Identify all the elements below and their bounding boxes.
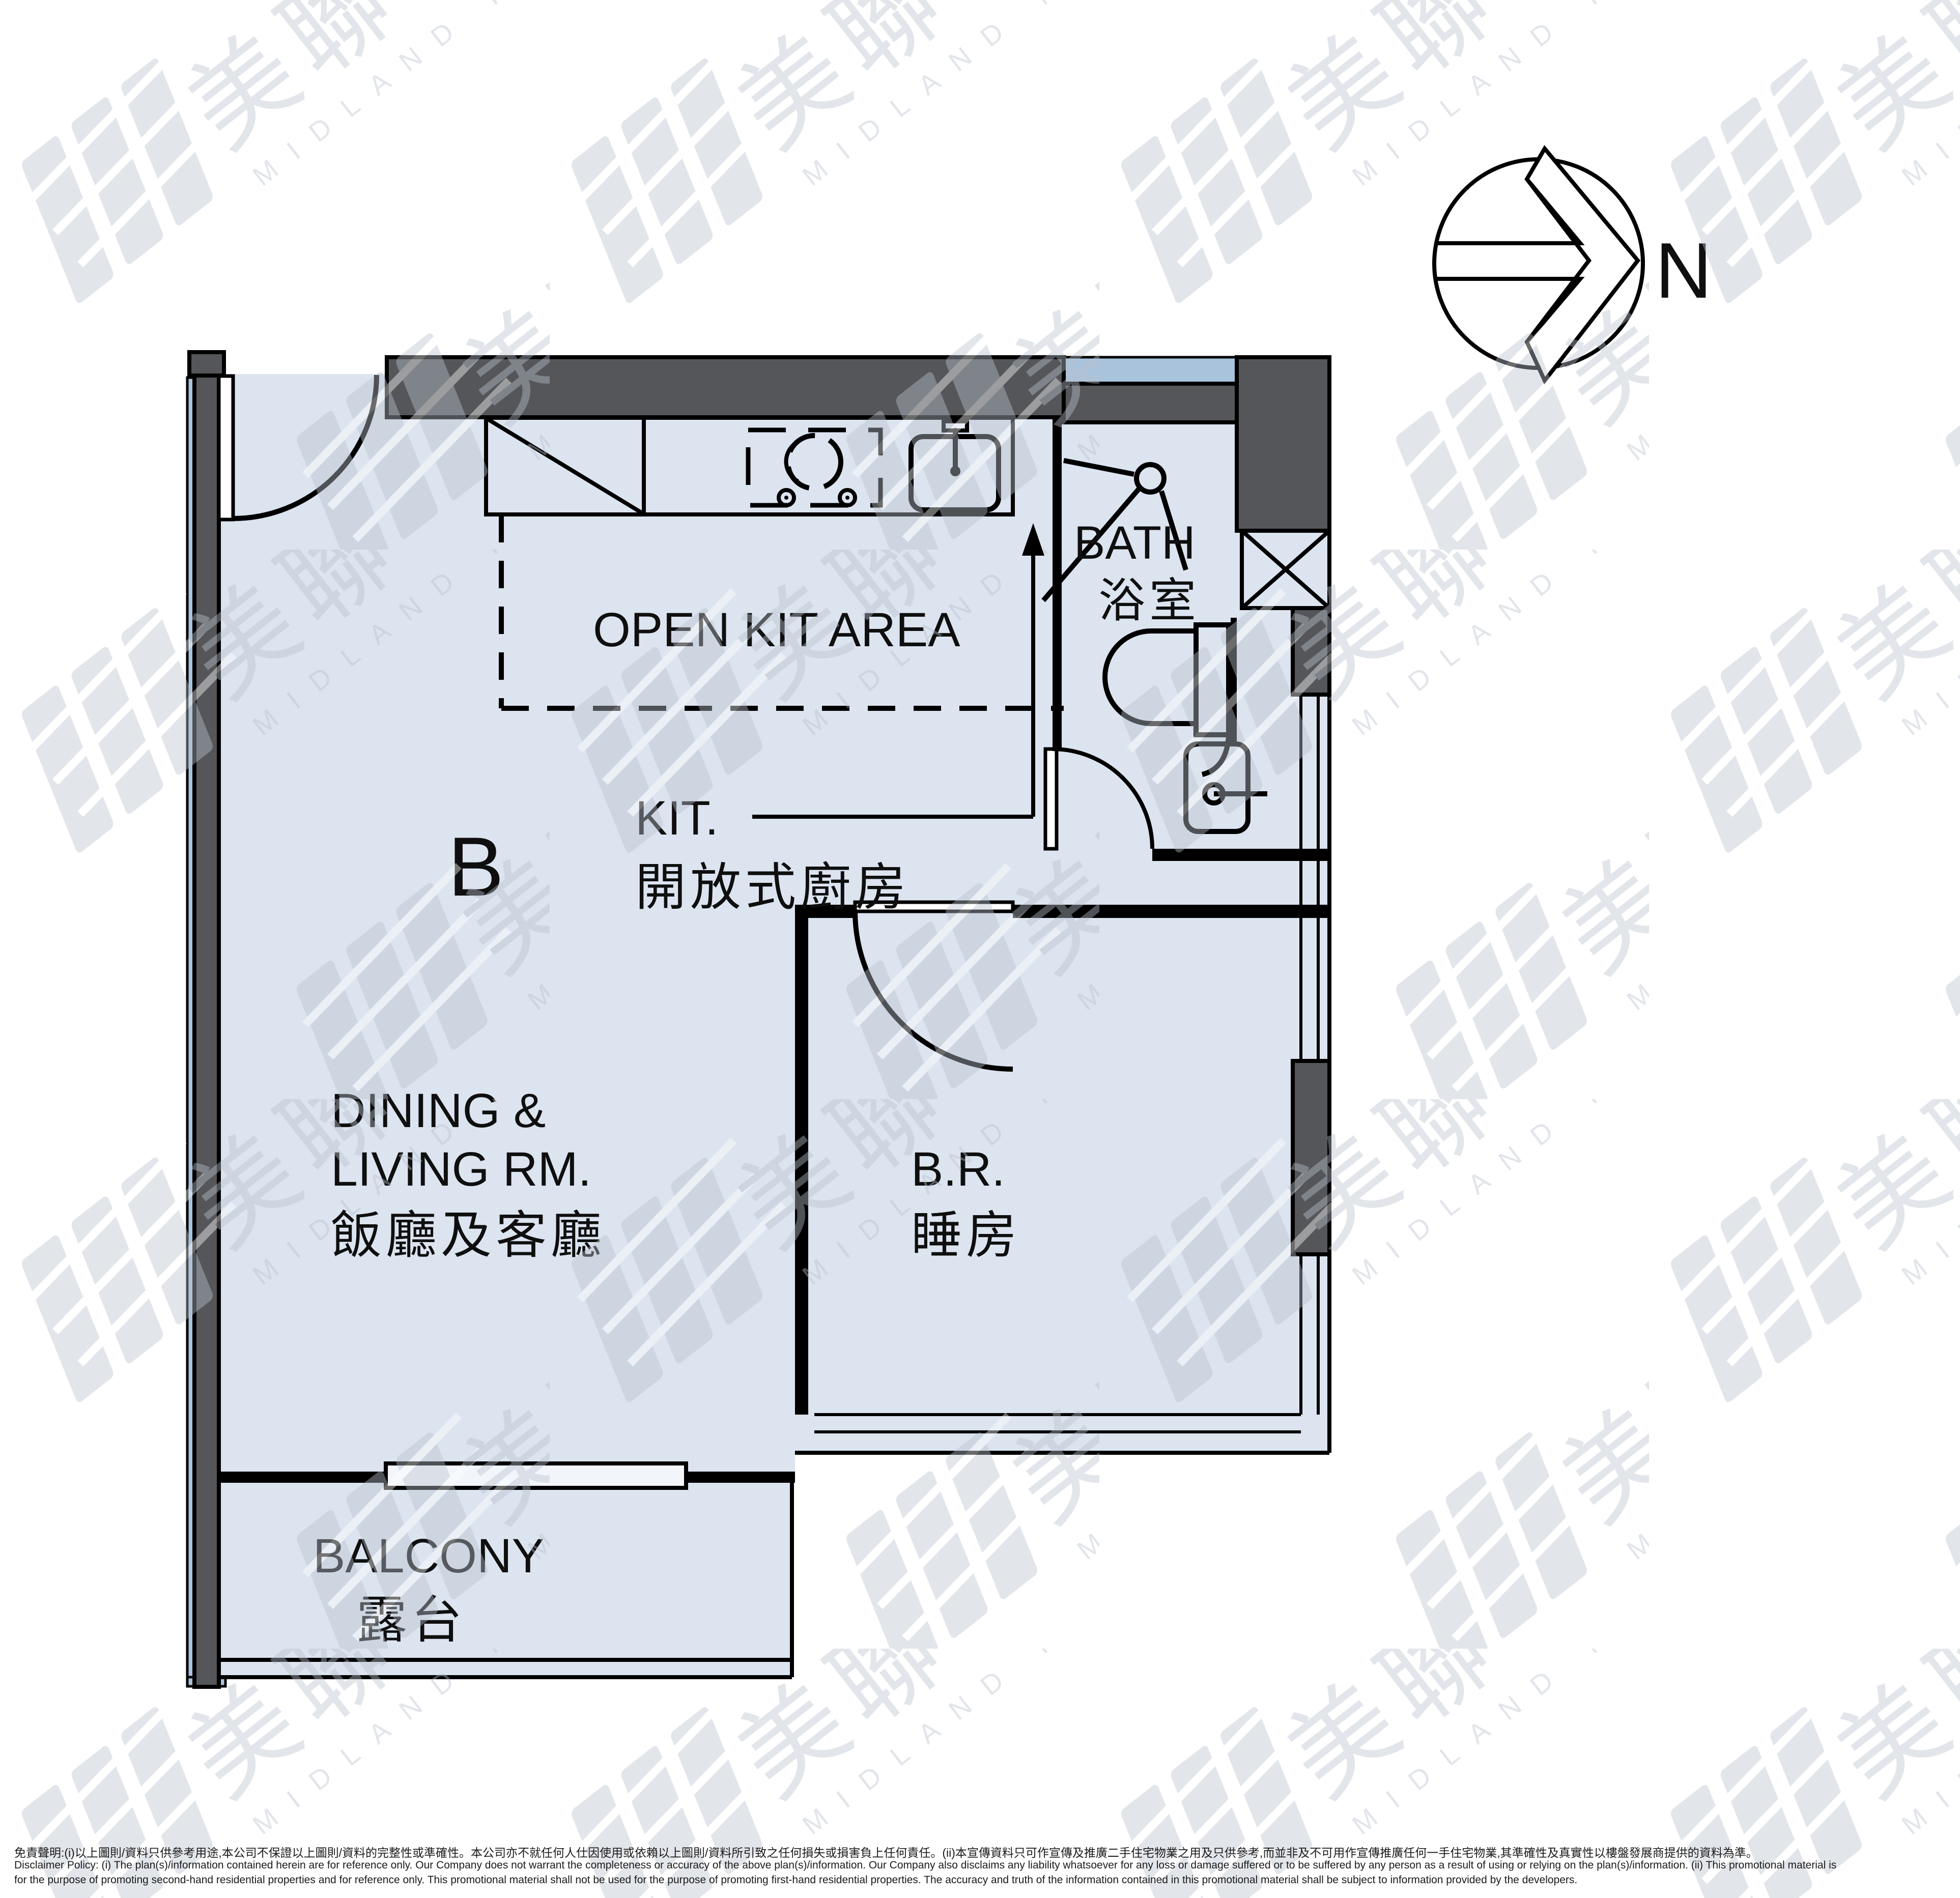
disclaimer-line-zh: 免責聲明:(i)以上圖則/資料只供參考用途,本公司不保證以上圖則/資料的完整性或… — [14, 1843, 1758, 1860]
disclaimer-line-en1: Disclaimer Policy: (i) The plan(s)/infor… — [14, 1859, 1836, 1872]
floorplan-drawing: 美聯物業 MIDLAND REALTY 美聯物業 MIDLAND REALTY — [0, 0, 1960, 1898]
watermark-layer — [0, 0, 1960, 1898]
disclaimer-line-en2: for the purpose of promoting second-hand… — [14, 1874, 1577, 1886]
floorplan-page: 美聯物業 MIDLAND REALTY 美聯物業 MIDLAND REALTY — [0, 0, 1960, 1898]
